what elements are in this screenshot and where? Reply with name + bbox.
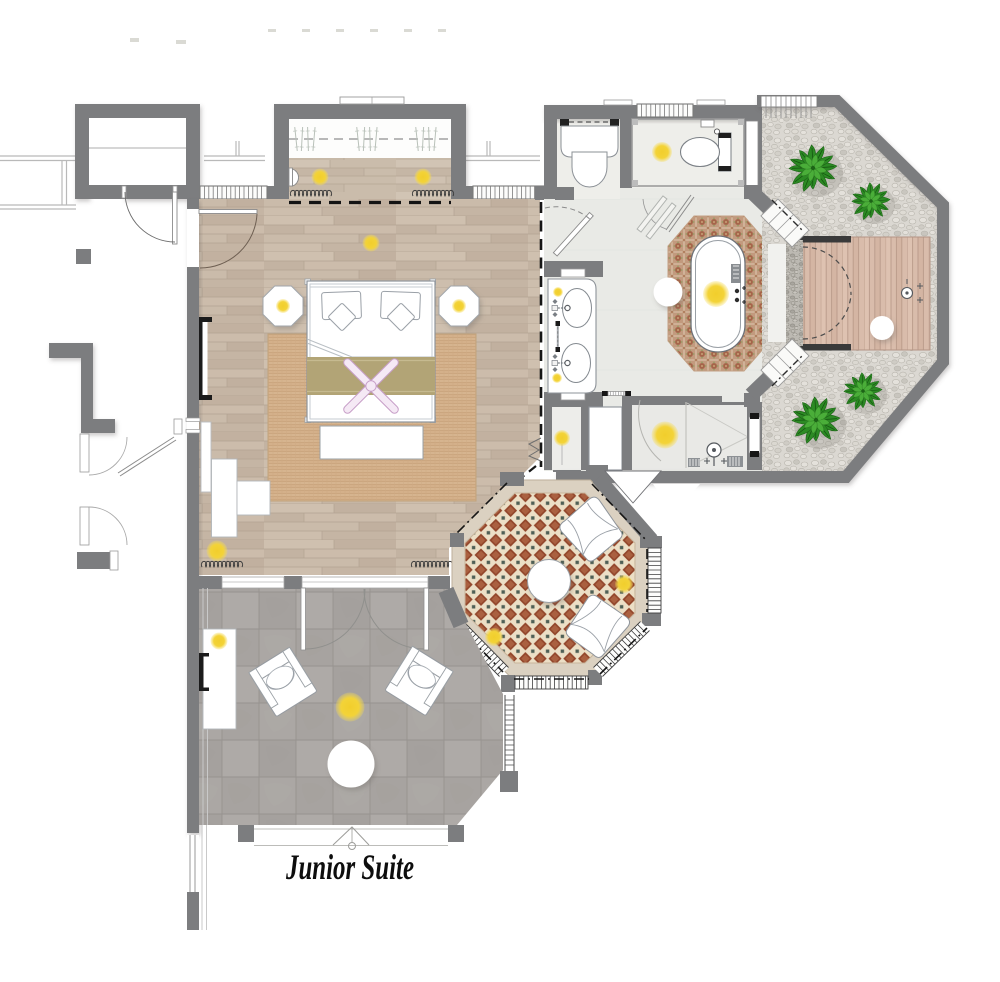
svg-text:Junior Suite: Junior Suite xyxy=(285,847,414,887)
